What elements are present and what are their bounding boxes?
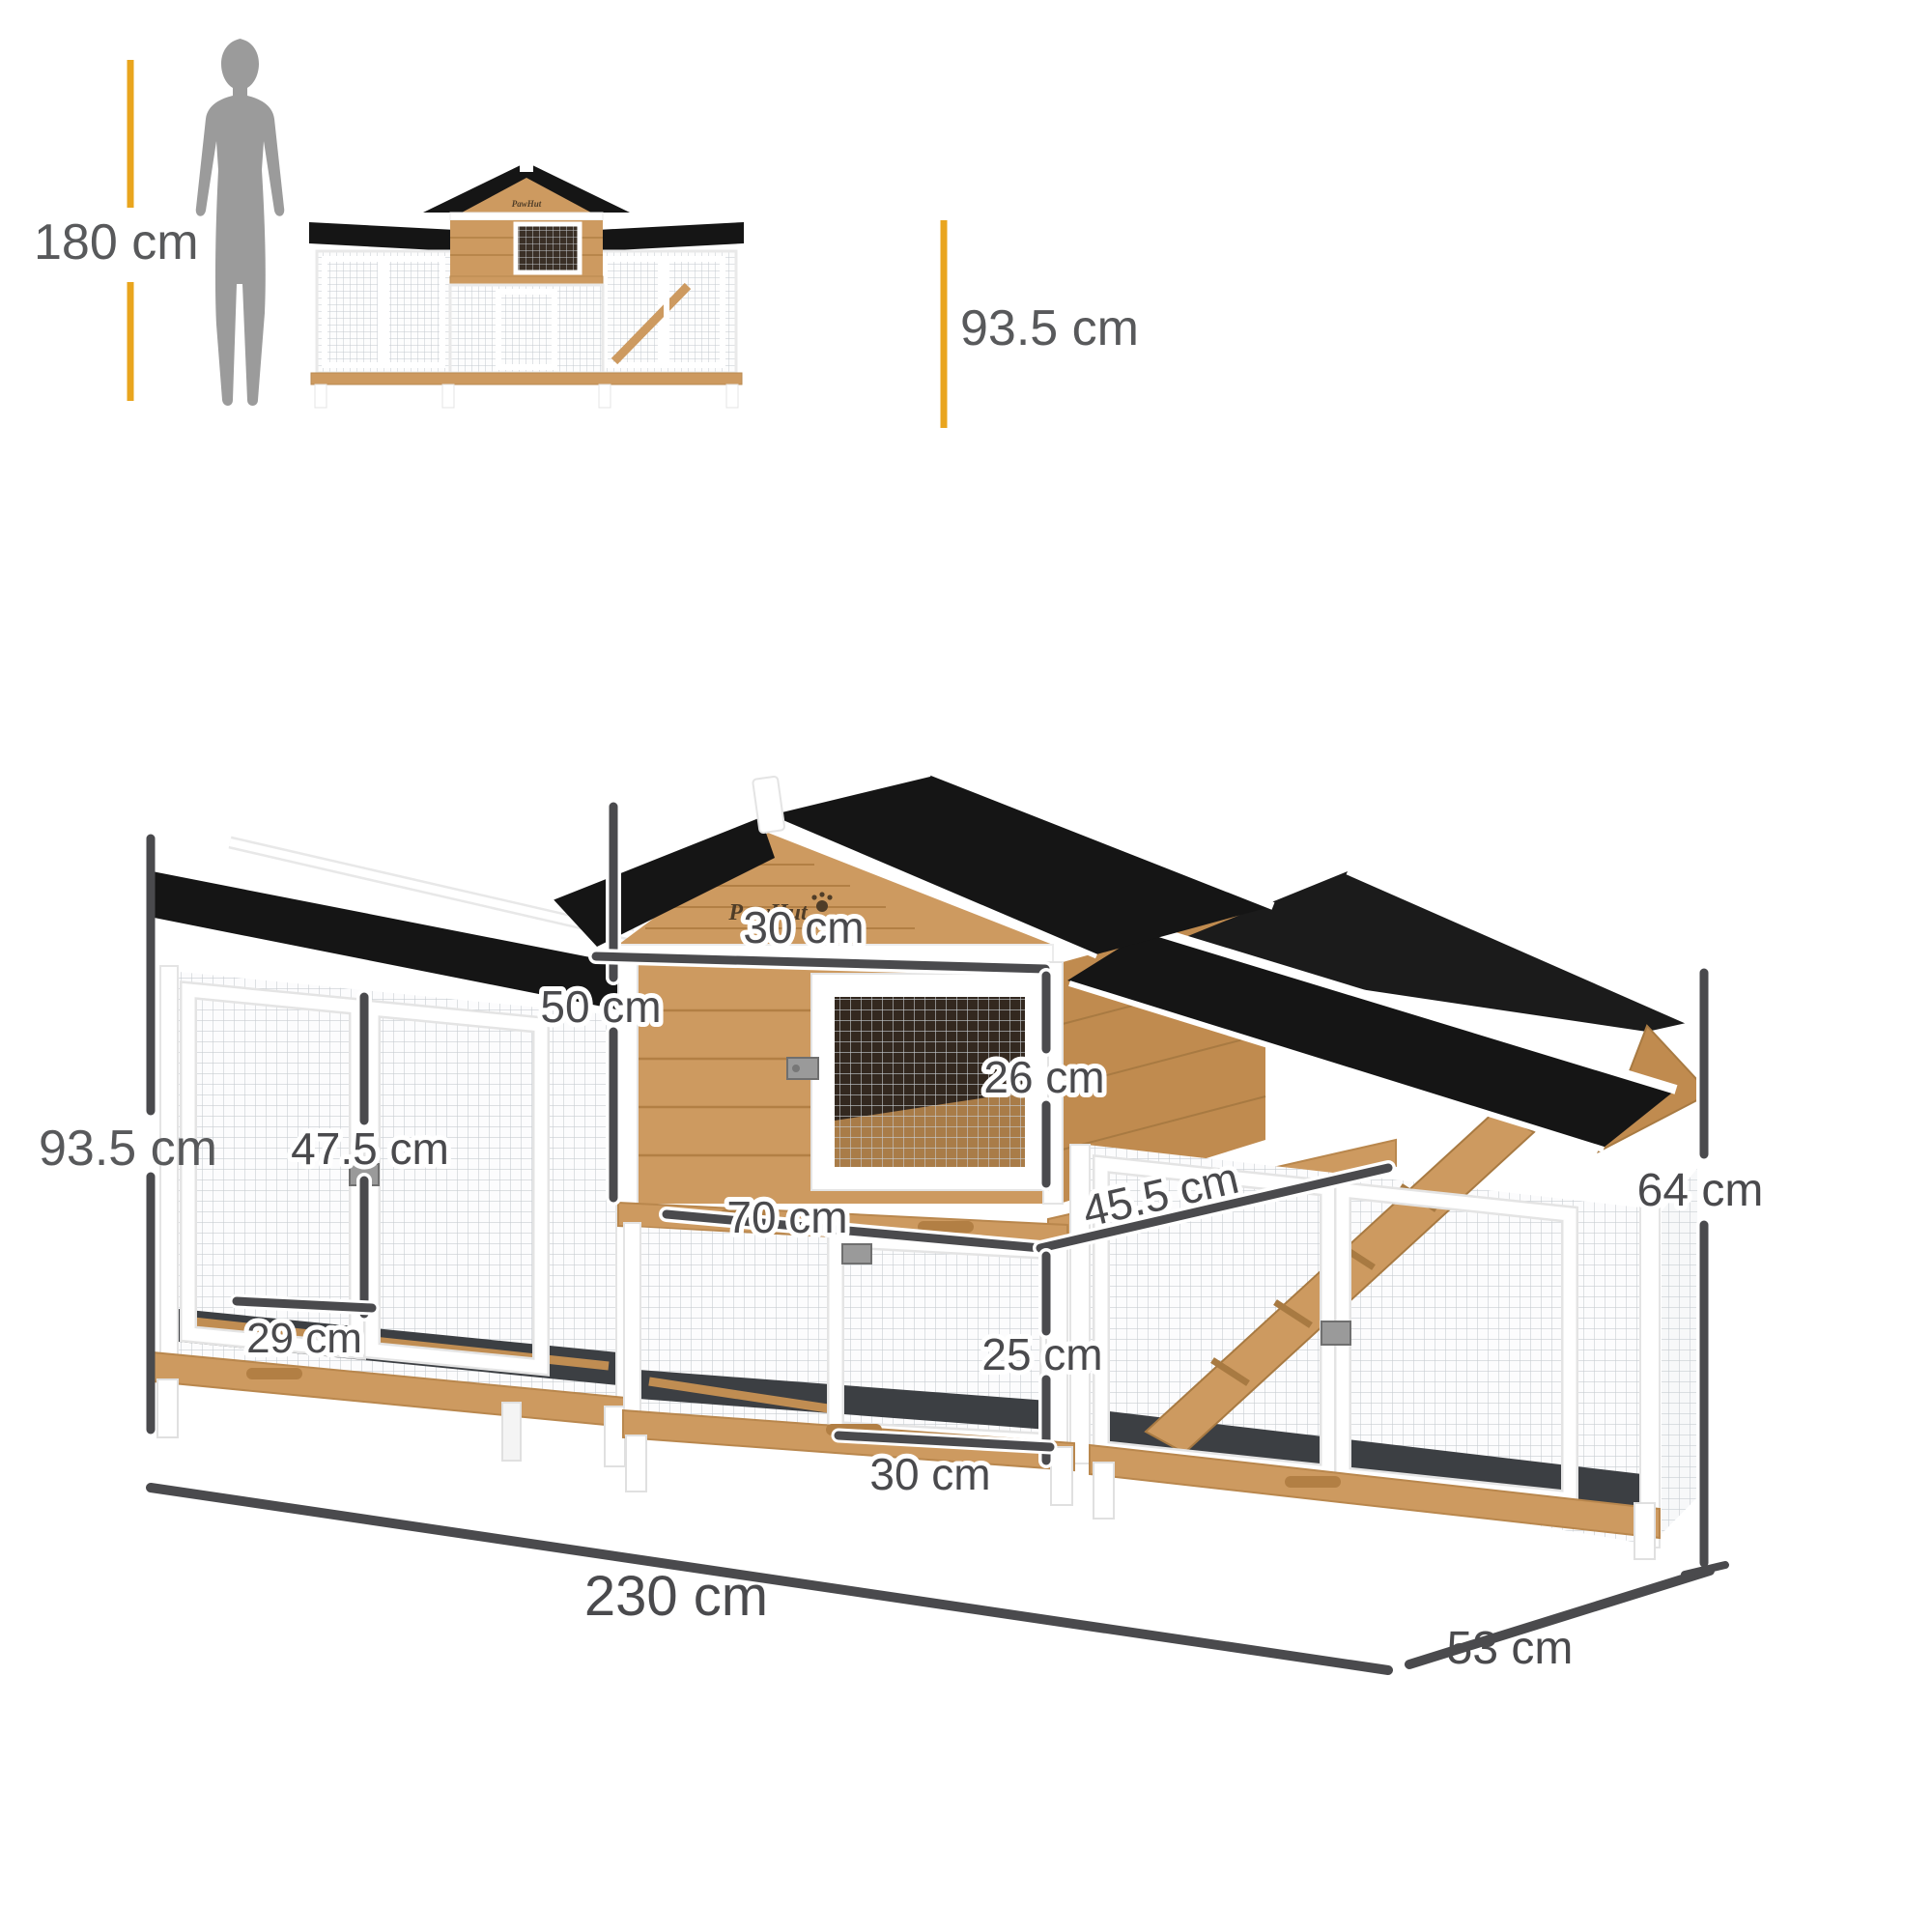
dimension-label: 53 cm — [1447, 1623, 1574, 1674]
left-back-leg — [502, 1403, 521, 1461]
right-corner-post — [1640, 1207, 1660, 1548]
thumb-leg — [442, 384, 454, 408]
front-view-height-label: 93.5 cm — [960, 300, 1139, 356]
center-left-leg — [626, 1435, 646, 1492]
left-right-leg — [605, 1406, 625, 1466]
thumb-gable-band — [450, 213, 603, 220]
human-silhouette — [196, 39, 285, 406]
thumb-brand-logo: PawHut — [512, 199, 542, 209]
left-front-leg — [157, 1379, 178, 1437]
dimension-label: 29 cm — [246, 1315, 362, 1362]
dimension-label: 30 cm — [869, 1449, 990, 1499]
left-base-handle — [246, 1368, 302, 1379]
lower-door-hinge — [842, 1244, 871, 1264]
right-base-handle — [1285, 1476, 1341, 1488]
dimension-tick — [1685, 1565, 1725, 1575]
center-right-leg — [1051, 1447, 1072, 1505]
person-height-dimension: 180 cm — [34, 60, 199, 401]
right-front-leg — [1094, 1463, 1114, 1519]
person-height-label: 180 cm — [34, 214, 199, 270]
dimension-label: 70 cm — [726, 1192, 847, 1242]
thumb-leg — [726, 384, 738, 408]
hatch-latch — [787, 1058, 818, 1079]
dimension-label: 25 cm — [981, 1329, 1102, 1379]
dimension-label: 47.5 cm — [291, 1123, 449, 1174]
dimension-label: 64 cm — [1637, 1165, 1764, 1216]
right-door-latch — [1321, 1321, 1350, 1345]
thumb-leg — [599, 384, 611, 408]
dimension-label: 230 cm — [584, 1565, 768, 1628]
dimension-label: 93.5 cm — [39, 1121, 217, 1177]
dim-total-depth: 53 cm — [1409, 1571, 1710, 1674]
right-end-leg — [1634, 1503, 1655, 1559]
dim-total-width: 230 cm — [151, 1488, 1388, 1670]
front-view-thumbnail: PawHut — [309, 160, 744, 408]
dimension-label: 50 cm — [540, 981, 661, 1032]
dimension-label: 26 cm — [983, 1052, 1104, 1102]
dimension-line — [151, 1488, 1388, 1670]
product-dimension-diagram: 180 cm PawHut — [0, 0, 1932, 1932]
thumb-leg — [315, 384, 327, 408]
dimension-label: 30 cm — [743, 902, 864, 952]
thumb-finial — [520, 160, 533, 172]
front-view-height-dimension: 93.5 cm — [944, 220, 1139, 428]
thumb-base — [311, 373, 742, 384]
lower-left-post — [624, 1223, 640, 1426]
left-wing — [153, 966, 636, 1466]
